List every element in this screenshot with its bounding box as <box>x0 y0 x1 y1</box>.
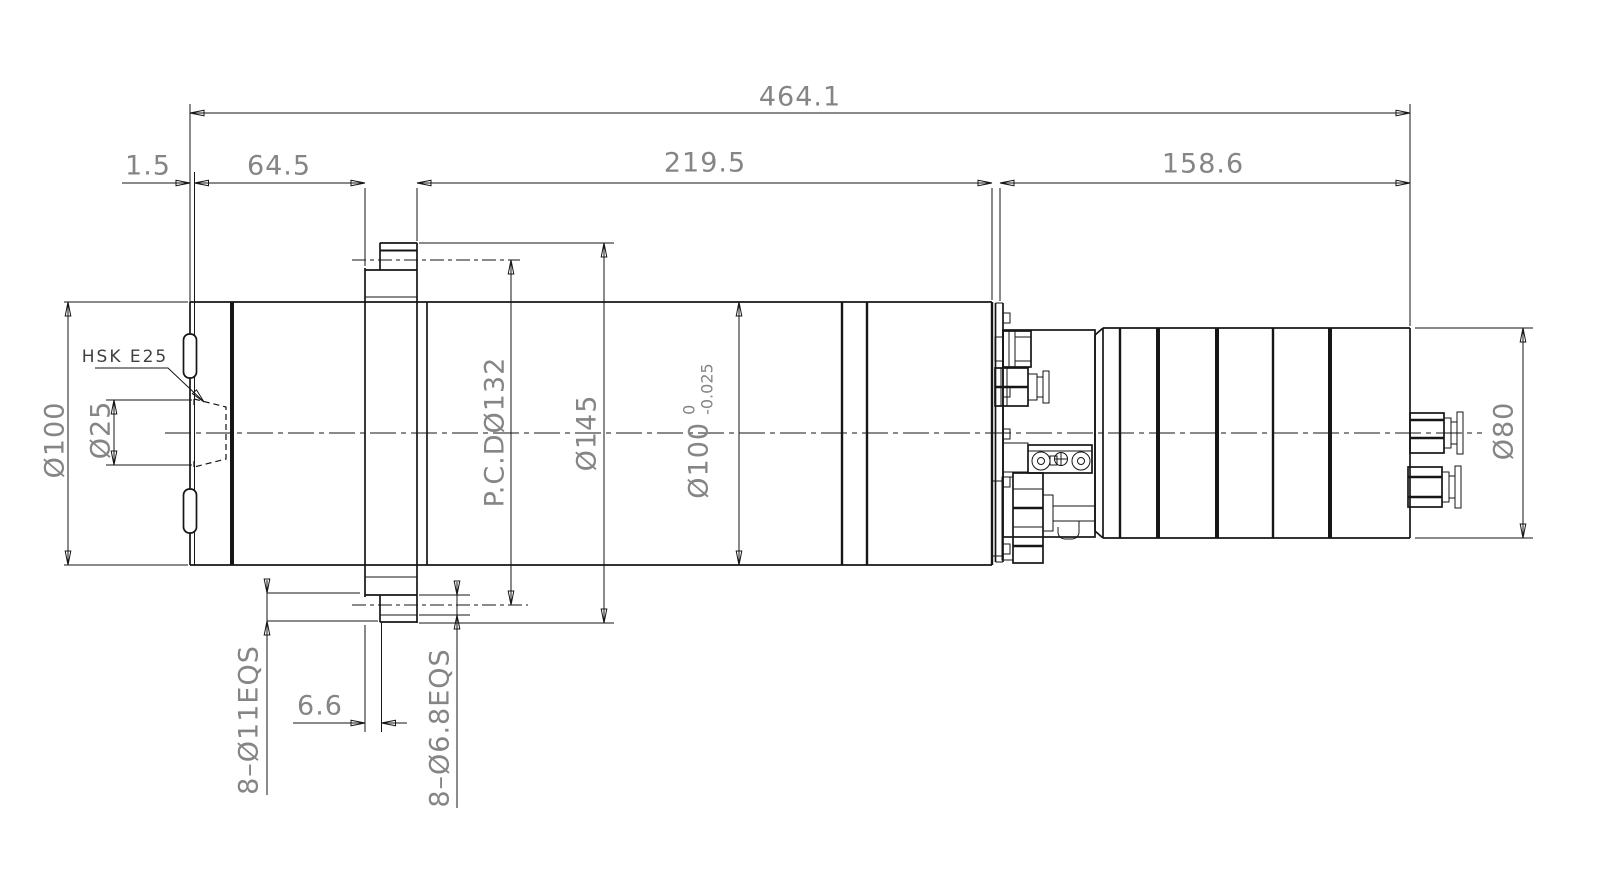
dim-body-od: Ø100 <box>684 422 715 499</box>
label-mount-holes: 8–Ø6.8EQS <box>425 648 456 807</box>
cable-tube <box>1053 506 1095 521</box>
dim-body-od-tolerance: 0 -0.025 <box>681 363 718 415</box>
terminal-bracket <box>1003 443 1092 473</box>
dim-taper-bore: Ø25 <box>86 401 117 460</box>
dim-front-section: 64.5 <box>247 151 311 182</box>
dim-front-od: Ø100 <box>40 402 71 479</box>
dim-bolt-circle: P.C.DØ132 <box>480 357 511 508</box>
label-flange-holes: 8–Ø11EQS <box>234 645 265 795</box>
dimension-arrowheads <box>65 110 1526 726</box>
dim-overall-length: 464.1 <box>759 82 841 113</box>
dim-flange-od: Ø145 <box>572 395 603 472</box>
label-taper-type: HSK E25 <box>82 347 169 367</box>
centerline <box>165 260 1482 605</box>
dim-rear-od: Ø80 <box>1489 402 1520 461</box>
extension-lines <box>64 104 1533 732</box>
rear-fitting-lower <box>1408 466 1461 508</box>
dim-mid-section: 219.5 <box>664 148 746 179</box>
dim-flange-step: 6.6 <box>297 691 343 722</box>
dimension-lines <box>68 113 1523 808</box>
dim-body-od-with-tolerance: Ø100 0 -0.025 <box>681 363 718 498</box>
pneumatic-fitting-top-small <box>995 331 1031 367</box>
spindle-engineering-drawing: 464.1 1.5 64.5 219.5 158.6 6.6 Ø100 Ø25 … <box>0 0 1622 892</box>
tolerance-lower: -0.025 <box>699 363 717 415</box>
dim-rear-section: 158.6 <box>1162 149 1244 180</box>
tolerance-upper: 0 <box>681 363 699 415</box>
dim-nose-protrusion: 1.5 <box>125 151 171 182</box>
